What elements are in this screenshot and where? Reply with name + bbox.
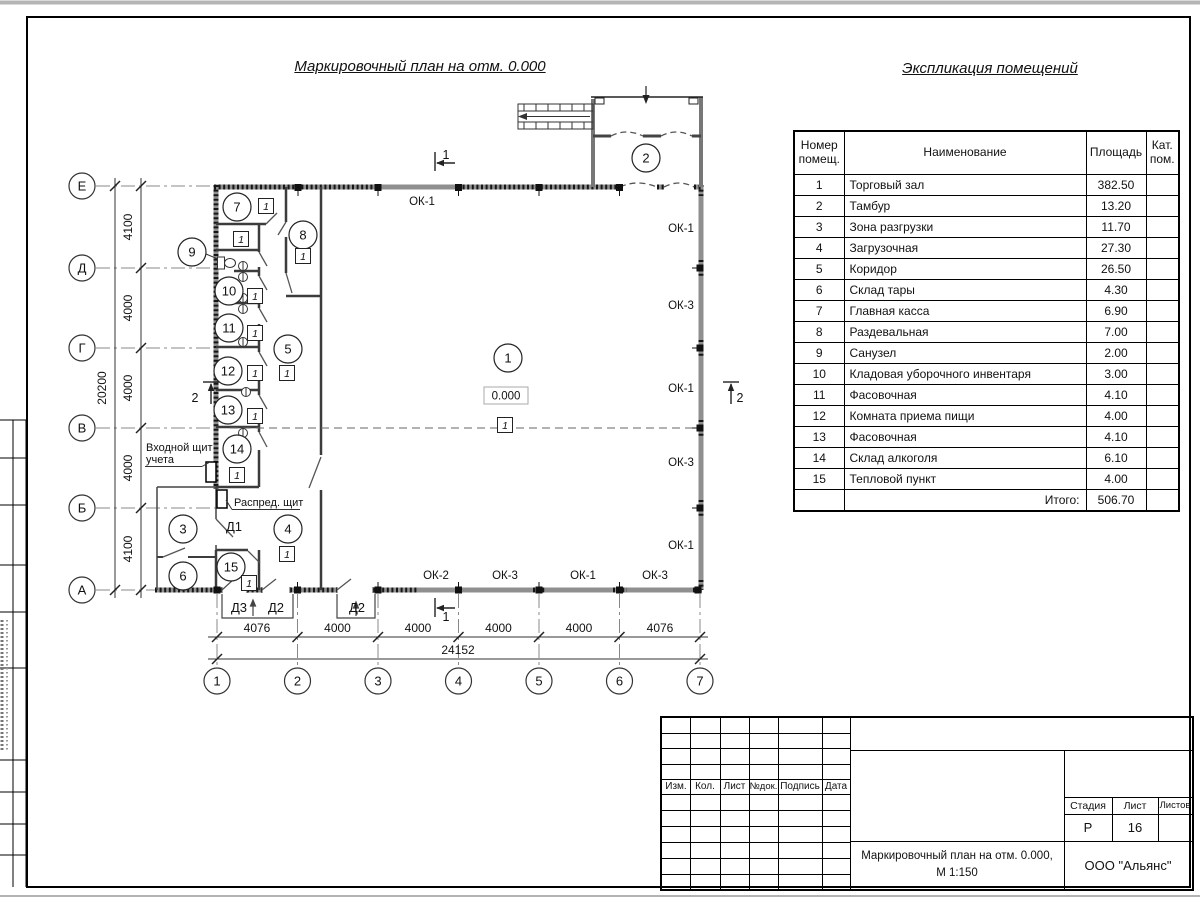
room-number: 3	[179, 522, 186, 537]
room-num: 5	[794, 258, 844, 279]
empty-cell	[794, 489, 844, 511]
stage-value: Р	[1064, 814, 1112, 841]
window-label: ОК-1	[409, 196, 435, 208]
table-row: 2Тамбур13.20	[794, 195, 1179, 216]
floor-marker: 1	[246, 578, 252, 590]
dim-bottom-2: 4000	[405, 621, 432, 635]
room-cat	[1146, 363, 1179, 384]
room-bubble-7: 7	[223, 193, 251, 221]
room-num: 6	[794, 279, 844, 300]
window-label: ОК-1	[668, 540, 694, 552]
room-name: Кладовая уборочного инвентаря	[844, 363, 1086, 384]
dim-bottom-0: 4076	[244, 621, 271, 635]
room-bubble-14: 14	[223, 435, 251, 463]
room-bubble-12: 12	[214, 357, 242, 385]
room-number: 13	[221, 403, 235, 418]
room-cat	[1146, 195, 1179, 216]
axis-letter: Г	[78, 341, 85, 356]
table-row: 3Зона разгрузки11.70	[794, 216, 1179, 237]
window-label: ОК-3	[668, 457, 694, 469]
section-mark-labels: 1 1 2 2	[192, 148, 744, 624]
room-area: 4.00	[1086, 405, 1146, 426]
plan-title: Маркировочный план на отм. 0.000	[250, 58, 590, 75]
dim-bottom-5: 4076	[647, 621, 674, 635]
room-area: 26.50	[1086, 258, 1146, 279]
room-area: 11.70	[1086, 216, 1146, 237]
divider	[662, 842, 850, 843]
entry-meter-panel	[206, 462, 216, 482]
room-name: Раздевальная	[844, 321, 1086, 342]
table-row: 14Склад алкоголя6.10	[794, 447, 1179, 468]
distribution-panel	[217, 490, 227, 508]
room-name: Тепловой пункт	[844, 468, 1086, 489]
window-label: ОК-3	[492, 570, 518, 582]
col-header-area: Площадь	[1086, 131, 1146, 174]
room-num: 4	[794, 237, 844, 258]
room-cat	[1146, 258, 1179, 279]
room-cat	[1146, 279, 1179, 300]
wc-bowl	[225, 259, 236, 268]
axis-letter: Е	[78, 179, 87, 194]
room-name: Фасовочная	[844, 426, 1086, 447]
room-cat	[1146, 321, 1179, 342]
room-area: 6.10	[1086, 447, 1146, 468]
divider	[850, 718, 851, 889]
room-area: 27.30	[1086, 237, 1146, 258]
stage-label: Стадия	[1064, 797, 1112, 814]
room-num: 10	[794, 363, 844, 384]
room-number: 2	[642, 151, 649, 166]
divider	[662, 764, 850, 765]
floor-marker: 1	[300, 251, 306, 263]
room-name: Главная касса	[844, 300, 1086, 321]
divider	[662, 858, 850, 859]
room-cat	[1146, 405, 1179, 426]
room-area: 4.30	[1086, 279, 1146, 300]
title-block: Изм. Кол. Лист №док. Подпись Дата Стадия…	[660, 716, 1194, 891]
table-row: 12Комната приема пищи4.00	[794, 405, 1179, 426]
room-cat	[1146, 174, 1179, 195]
dim-left-0: 4100	[121, 213, 135, 240]
room-number: 14	[230, 442, 244, 457]
room-name: Склад алкоголя	[844, 447, 1086, 468]
room-number: 10	[222, 284, 236, 299]
tb-col-data: Дата	[822, 779, 850, 794]
col-header-cat: Кат. пом.	[1146, 131, 1179, 174]
sheets-label: Листов	[1158, 797, 1192, 814]
room-bubble-3: 3	[169, 515, 197, 543]
room-area: 13.20	[1086, 195, 1146, 216]
vestibule	[518, 86, 703, 187]
door-label-d3: Д3	[231, 600, 247, 615]
company-name: ООО "Альянс"	[1064, 841, 1192, 889]
section-label: 2	[192, 391, 199, 405]
dim-bottom-3: 4000	[485, 621, 512, 635]
window-label: ОК-1	[668, 383, 694, 395]
room-number: 6	[179, 569, 186, 584]
room-bubble-5: 5	[274, 335, 302, 363]
divider	[720, 718, 721, 889]
room-name: Торговый зал	[844, 174, 1086, 195]
room-number: 9	[188, 245, 195, 260]
floor-marker: 1	[252, 411, 258, 423]
divider	[778, 718, 779, 889]
room-area: 6.90	[1086, 300, 1146, 321]
table-row: 10Кладовая уборочного инвентаря3.00	[794, 363, 1179, 384]
tb-col-izm: Изм.	[662, 779, 690, 794]
doc-title: Маркировочный план на отм. 0.000, М 1:15…	[852, 841, 1062, 889]
distribution-panel-label: Распред. щит	[234, 497, 303, 509]
dim-left-2: 4000	[121, 374, 135, 401]
elevation-mark: 0.000	[484, 387, 528, 404]
divider	[662, 826, 850, 827]
room-number: 7	[233, 200, 240, 215]
sheet-label: Лист	[1112, 797, 1158, 814]
room-bubbles: 1 2 3 4 5 6 7 8 9 10 11 12 13 14 15	[169, 144, 660, 590]
divider	[662, 794, 850, 795]
room-area: 382.50	[1086, 174, 1146, 195]
floor-marker: 1	[234, 470, 240, 482]
floor-marker: 1	[284, 549, 290, 561]
room-name: Загрузочная	[844, 237, 1086, 258]
axis-number: 2	[294, 674, 301, 689]
room-bubble-2: 2	[632, 144, 660, 172]
doc-title-line2: М 1:150	[936, 865, 978, 882]
room-num: 7	[794, 300, 844, 321]
axis-number: 4	[455, 674, 462, 689]
table-row: 11Фасовочная4.10	[794, 384, 1179, 405]
floor-markers: 1 1 1 1 1 1 1 1 1 1 1 1	[230, 199, 513, 591]
room-area: 4.10	[1086, 426, 1146, 447]
room-bubble-13: 13	[214, 396, 242, 424]
explication-table: Номер помещ. Наименование Площадь Кат. п…	[793, 130, 1180, 512]
window-label: ОК-2	[423, 570, 449, 582]
table-row: 6Склад тары4.30	[794, 279, 1179, 300]
room-bubble-1: 1	[494, 344, 522, 372]
table-row: 5Коридор26.50	[794, 258, 1179, 279]
drawing-sheet: 4100 4000 4000 4000 4100 20200 4076 4000…	[0, 0, 1200, 900]
section-label: 2	[737, 391, 744, 405]
left-margin-stamp	[0, 420, 26, 887]
room-name: Зона разгрузки	[844, 216, 1086, 237]
room-cat	[1146, 216, 1179, 237]
axis-number: 7	[696, 674, 703, 689]
entry-panel-label: Входной щит	[146, 442, 213, 454]
room-name: Комната приема пищи	[844, 405, 1086, 426]
room-bubble-15: 15	[217, 553, 245, 581]
table-row: 7Главная касса6.90	[794, 300, 1179, 321]
room-num: 1	[794, 174, 844, 195]
room-area: 3.00	[1086, 363, 1146, 384]
axis-number: 1	[213, 674, 220, 689]
axis-letter: А	[78, 583, 87, 598]
col-header-name: Наименование	[844, 131, 1086, 174]
room-num: 2	[794, 195, 844, 216]
dim-bottom-total: 24152	[441, 643, 475, 657]
room-number: 11	[222, 321, 236, 336]
room-num: 12	[794, 405, 844, 426]
room-number: 5	[284, 342, 291, 357]
room-cat	[1146, 300, 1179, 321]
dim-bottom-1: 4000	[324, 621, 351, 635]
total-area: 506.70	[1086, 489, 1146, 511]
room-num: 15	[794, 468, 844, 489]
elevation-value: 0.000	[492, 391, 521, 403]
room-bubble-8: 8	[289, 221, 317, 249]
floor-marker: 1	[263, 201, 269, 213]
room-cat	[1146, 468, 1179, 489]
axis-letter: Д	[78, 261, 87, 276]
section-label: 1	[443, 610, 450, 624]
table-row: 13Фасовочная4.10	[794, 426, 1179, 447]
room-num: 13	[794, 426, 844, 447]
room-name: Санузел	[844, 342, 1086, 363]
room-number: 12	[221, 364, 235, 379]
section-label: 1	[443, 148, 450, 162]
divider	[749, 718, 750, 889]
axis-letter: В	[78, 421, 87, 436]
room-bubble-10: 10	[215, 277, 243, 305]
door-label-d1: Д1	[226, 519, 242, 534]
axis-number: 5	[535, 674, 542, 689]
room-area: 4.10	[1086, 384, 1146, 405]
window-label: ОК-3	[642, 570, 668, 582]
room-cat	[1146, 426, 1179, 447]
divider	[662, 748, 850, 749]
room-cat	[1146, 342, 1179, 363]
room-cat	[1146, 447, 1179, 468]
room-num: 14	[794, 447, 844, 468]
door-label-d2: Д2	[268, 600, 284, 615]
room-cat	[1146, 237, 1179, 258]
dim-left-total: 20200	[95, 371, 109, 405]
room-number: 8	[299, 228, 306, 243]
room-num: 3	[794, 216, 844, 237]
room-bubble-9: 9	[178, 238, 218, 266]
room-number: 1	[504, 351, 511, 366]
axis-number: 6	[616, 674, 623, 689]
axis-letter: Б	[78, 501, 87, 516]
tb-col-podpis: Подпись	[778, 779, 822, 794]
entry-panel-label2: учета	[146, 454, 175, 466]
room-num: 8	[794, 321, 844, 342]
window-labels: ОК-1 ОК-1 ОК-3 ОК-1 ОК-3 ОК-1 ОК-2 ОК-3 …	[409, 196, 694, 582]
col-header-num: Номер помещ.	[794, 131, 844, 174]
tb-col-list: Лист	[720, 779, 749, 794]
room-area: 4.00	[1086, 468, 1146, 489]
total-label: Итого:	[844, 489, 1086, 511]
floor-marker: 1	[284, 368, 290, 380]
room-bubble-11: 11	[215, 314, 243, 342]
room-bubble-6: 6	[169, 562, 197, 590]
floor-marker: 1	[252, 368, 258, 380]
table-row: 8Раздевальная7.00	[794, 321, 1179, 342]
divider	[690, 718, 691, 889]
window-label: ОК-3	[668, 300, 694, 312]
table-row: 9Санузел2.00	[794, 342, 1179, 363]
window-label: ОК-1	[668, 223, 694, 235]
room-area: 2.00	[1086, 342, 1146, 363]
room-num: 9	[794, 342, 844, 363]
room-number: 15	[224, 560, 238, 575]
room-name: Фасовочная	[844, 384, 1086, 405]
room-name: Склад тары	[844, 279, 1086, 300]
window-label: ОК-1	[570, 570, 596, 582]
tb-col-kol: Кол.	[690, 779, 720, 794]
dim-left-4: 4100	[121, 535, 135, 562]
floor-marker: 1	[502, 420, 508, 432]
table-total-row: Итого: 506.70	[794, 489, 1179, 511]
table-header-row: Номер помещ. Наименование Площадь Кат. п…	[794, 131, 1179, 174]
wc-tank	[218, 257, 225, 269]
divider	[850, 750, 1192, 751]
room-cat	[1146, 384, 1179, 405]
floor-marker: 1	[238, 234, 244, 246]
room-name: Тамбур	[844, 195, 1086, 216]
divider	[662, 733, 850, 734]
empty-cell	[1146, 489, 1179, 511]
table-row: 1Торговый зал382.50	[794, 174, 1179, 195]
sheet-number: 16	[1112, 814, 1158, 841]
dim-left-1: 4000	[121, 294, 135, 321]
table-row: 4Загрузочная27.30	[794, 237, 1179, 258]
dim-left-3: 4000	[121, 454, 135, 481]
divider	[662, 874, 850, 875]
floor-marker: 1	[252, 291, 258, 303]
room-number: 4	[284, 522, 291, 537]
divider	[662, 810, 850, 811]
tb-col-ndok: №док.	[749, 779, 778, 794]
axis-bubbles: Е Д Г В Б А 1 2 3 4 5 6 7	[69, 173, 713, 694]
table-row: 15Тепловой пункт4.00	[794, 468, 1179, 489]
divider	[822, 718, 823, 889]
room-area: 7.00	[1086, 321, 1146, 342]
explication-title: Экспликация помещений	[820, 60, 1160, 77]
doc-title-line1: Маркировочный план на отм. 0.000,	[861, 848, 1053, 865]
floor-marker: 1	[252, 328, 258, 340]
room-name: Коридор	[844, 258, 1086, 279]
door-label-d2b: Д2	[349, 600, 365, 615]
room-num: 11	[794, 384, 844, 405]
axis-number: 3	[374, 674, 381, 689]
dim-bottom-4: 4000	[566, 621, 593, 635]
room-bubble-4: 4	[274, 515, 302, 543]
